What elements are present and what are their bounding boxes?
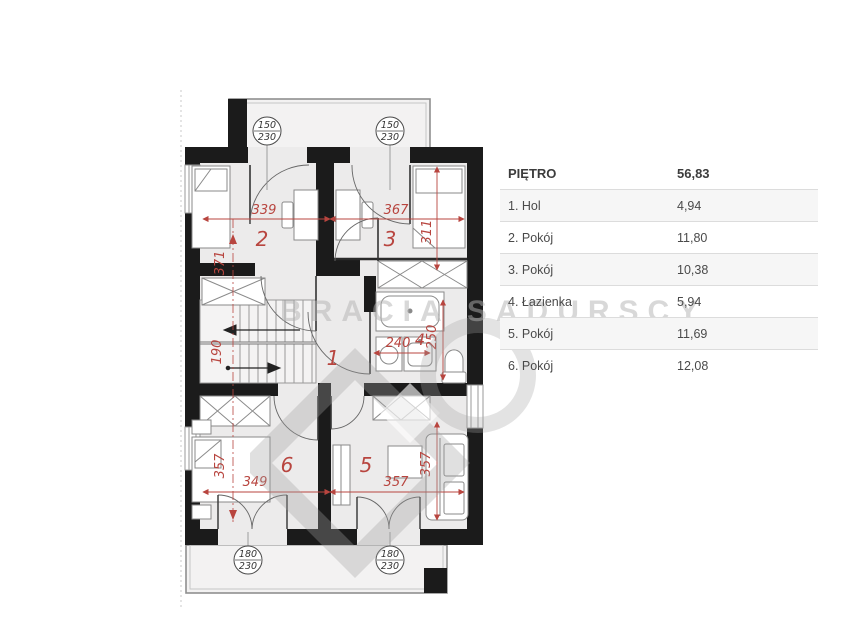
dim-357-right: 357: [419, 451, 434, 477]
dim-339: 339: [252, 203, 277, 218]
dim-349: 349: [243, 475, 268, 490]
room-label-1: 1: [327, 346, 340, 370]
dim-190: 190: [210, 340, 225, 365]
dim-367: 367: [384, 203, 410, 218]
room-area: 11,69: [677, 327, 810, 341]
legend-header-value: 56,83: [677, 166, 810, 181]
dim-240: 240: [386, 336, 411, 351]
legend-header-label: PIĘTRO: [508, 166, 677, 181]
table-row: 3. Pokój 10,38: [500, 253, 818, 285]
table-row: 4. Łazienka 5,94: [500, 285, 818, 317]
dim-357-mid: 357: [384, 475, 410, 490]
svg-text:150: 150: [258, 120, 276, 131]
floor-plan: 339 367 311 371 190 240 250 357 349 357 …: [165, 85, 505, 610]
room-area: 11,80: [677, 231, 810, 245]
room-label-6: 6: [281, 453, 294, 477]
bed-room2: [192, 166, 230, 248]
room-area: 10,38: [677, 263, 810, 277]
room-area: 12,08: [677, 359, 810, 373]
balcony-bottom: [186, 545, 447, 593]
room-name: 3. Pokój: [508, 263, 677, 277]
legend-header: PIĘTRO 56,83: [500, 157, 818, 189]
room-name: 1. Hol: [508, 199, 677, 213]
room-name: 4. Łazienka: [508, 295, 677, 309]
room-area: 5,94: [677, 295, 810, 309]
room-area: 4,94: [677, 199, 810, 213]
nightstand: [192, 505, 211, 519]
room-name: 5. Pokój: [508, 327, 677, 341]
room-label-3: 3: [384, 227, 397, 251]
table-row: 2. Pokój 11,80: [500, 221, 818, 253]
window-room5: [467, 385, 483, 428]
screenshot-root: 339 367 311 371 190 240 250 357 349 357 …: [0, 0, 860, 617]
svg-text:230: 230: [381, 132, 399, 143]
svg-text:230: 230: [381, 561, 399, 572]
svg-text:150: 150: [381, 120, 399, 131]
room-legend-table: PIĘTRO 56,83 1. Hol 4,94 2. Pokój 11,80 …: [500, 157, 818, 381]
room-name: 2. Pokój: [508, 231, 677, 245]
svg-text:230: 230: [239, 561, 257, 572]
dim-371: 371: [213, 251, 228, 276]
table-row: 6. Pokój 12,08: [500, 349, 818, 381]
svg-text:180: 180: [381, 549, 399, 560]
nightstand: [192, 420, 211, 434]
svg-text:180: 180: [239, 549, 257, 560]
table-row: 5. Pokój 11,69: [500, 317, 818, 349]
svg-text:230: 230: [258, 132, 276, 143]
room-label-5: 5: [360, 453, 373, 477]
room-name: 6. Pokój: [508, 359, 677, 373]
table-row: 1. Hol 4,94: [500, 189, 818, 221]
dim-311: 311: [420, 220, 435, 245]
room-label-2: 2: [256, 227, 269, 251]
room-label-4: 4: [415, 330, 425, 349]
dim-357-left: 357: [213, 453, 228, 479]
dim-250: 250: [425, 325, 440, 350]
table-room5: [388, 446, 422, 478]
cabinet-room5: [333, 445, 350, 505]
